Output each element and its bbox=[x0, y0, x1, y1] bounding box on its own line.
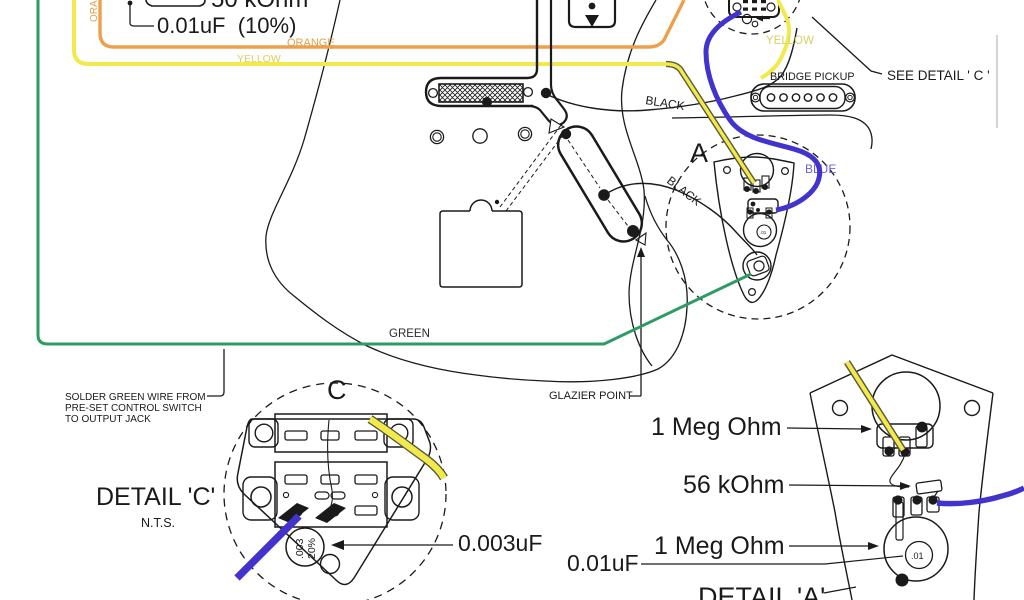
svg-text:TO OUTPUT JACK: TO OUTPUT JACK bbox=[65, 414, 151, 425]
svg-text:GLAZIER POINT: GLAZIER POINT bbox=[549, 390, 633, 402]
svg-text:.01: .01 bbox=[911, 551, 924, 561]
svg-text:0.003uF: 0.003uF bbox=[458, 530, 542, 556]
svg-text:BRIDGE PICKUP: BRIDGE PICKUP bbox=[770, 71, 855, 83]
svg-text:DETAIL 'C': DETAIL 'C' bbox=[96, 483, 215, 511]
svg-text:C: C bbox=[327, 375, 347, 405]
svg-text:SOLDER GREEN WIRE FROM: SOLDER GREEN WIRE FROM bbox=[65, 392, 206, 403]
svg-text:.003: .003 bbox=[294, 538, 306, 559]
svg-text:SEE DETAIL ' C ': SEE DETAIL ' C ' bbox=[887, 68, 990, 83]
svg-text:ORANGE: ORANGE bbox=[287, 37, 335, 49]
svg-text:20%: 20% bbox=[306, 538, 318, 559]
svg-text:0.01uF (10%): 0.01uF (10%) bbox=[157, 13, 296, 38]
svg-text:50 kOhm: 50 kOhm bbox=[211, 0, 308, 13]
svg-text:.01: .01 bbox=[760, 230, 767, 235]
svg-text:PRE-SET CONTROL SWITCH: PRE-SET CONTROL SWITCH bbox=[65, 403, 202, 414]
svg-text:YELLOW: YELLOW bbox=[766, 35, 814, 47]
svg-text:1 Meg Ohm: 1 Meg Ohm bbox=[651, 413, 782, 441]
svg-text:56 kOhm: 56 kOhm bbox=[683, 471, 784, 499]
svg-text:0.01uF: 0.01uF bbox=[567, 550, 639, 576]
svg-text:YELLOW: YELLOW bbox=[237, 53, 281, 65]
svg-text:DETAIL 'A': DETAIL 'A' bbox=[698, 582, 825, 600]
svg-text:N.T.S.: N.T.S. bbox=[141, 516, 175, 530]
svg-text:ORANGE: ORANGE bbox=[89, 0, 100, 22]
svg-text:A: A bbox=[690, 138, 708, 168]
svg-text:1 Meg Ohm: 1 Meg Ohm bbox=[654, 532, 785, 560]
svg-text:GREEN: GREEN bbox=[389, 328, 430, 340]
